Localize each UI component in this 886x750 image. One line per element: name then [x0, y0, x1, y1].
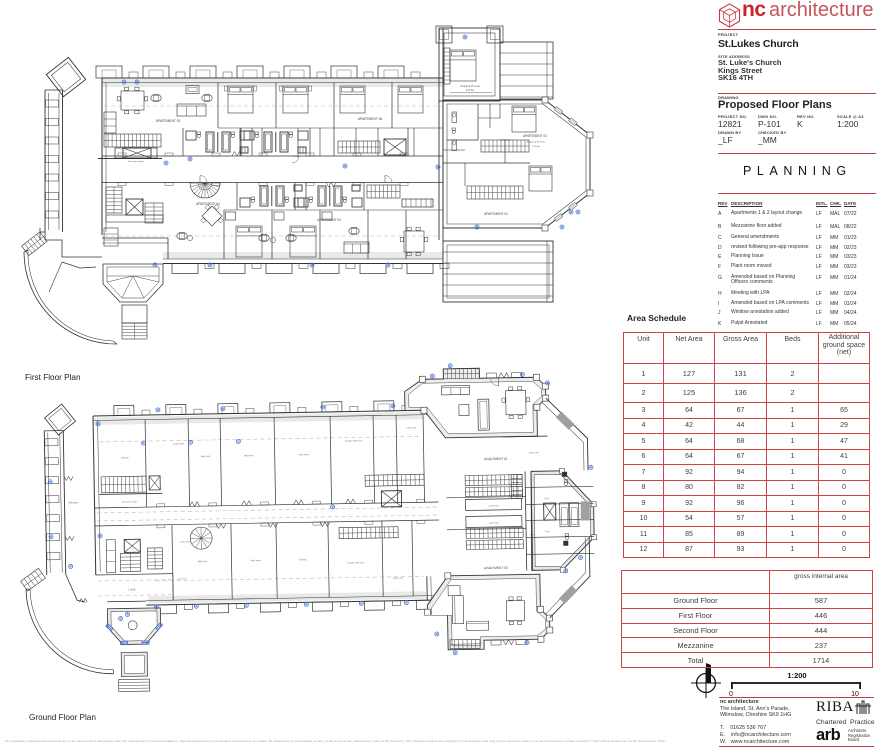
svg-text:Cycle store: Cycle store [406, 426, 417, 429]
svg-text:APARTMENT 02: APARTMENT 02 [484, 212, 508, 216]
svg-text:Storage / Bed room: Storage / Bed room [345, 439, 363, 442]
svg-text:APARTMENT 02: APARTMENT 02 [484, 566, 508, 570]
svg-text:APARTMENT 03: APARTMENT 03 [156, 119, 181, 123]
svg-text:Cinema: Cinema [121, 457, 129, 459]
svg-text:Plant room: Plant room [298, 453, 309, 456]
svg-text:1:56.9m: 1:56.9m [532, 146, 540, 148]
svg-text:APARTMENT 06: APARTMENT 06 [358, 117, 383, 121]
svg-text:Cycle store: Cycle store [529, 451, 540, 454]
svg-text:Cycle store: Cycle store [173, 442, 185, 445]
svg-text:1:57.8m: 1:57.8m [466, 90, 474, 92]
svg-text:APARTMENT 01: APARTMENT 01 [484, 457, 508, 461]
svg-text:Entrance: Entrance [69, 501, 79, 504]
svg-text:Cycle store: Cycle store [393, 577, 404, 580]
svg-text:Proposed FF Level: Proposed FF Level [527, 141, 546, 144]
svg-text:1:200: 1:200 [787, 671, 806, 680]
svg-text:First Floor Plan: First Floor Plan [25, 373, 81, 382]
svg-text:Plant room: Plant room [250, 559, 261, 562]
svg-text:Cinema: Cinema [299, 559, 307, 561]
svg-text:Store: Store [529, 503, 534, 506]
svg-text:Ground Floor Plan: Ground Floor Plan [29, 713, 96, 722]
svg-text:Cycle store: Cycle store [489, 504, 500, 507]
svg-text:Bed room: Bed room [201, 455, 211, 458]
svg-text:APARTMENT 01: APARTMENT 01 [523, 134, 547, 138]
svg-text:Cycle store: Cycle store [180, 540, 191, 543]
svg-text:Store: Store [530, 533, 535, 536]
svg-text:Bed room: Bed room [198, 560, 208, 563]
svg-text:Proposed FF Level: Proposed FF Level [460, 85, 480, 88]
svg-text:Cycle store: Cycle store [177, 577, 187, 580]
svg-text:Mezzanine bridge: Mezzanine bridge [122, 500, 137, 503]
svg-text:APARTMENT 04: APARTMENT 04 [196, 202, 220, 206]
svg-text:Mezzanine bridge: Mezzanine bridge [128, 161, 145, 163]
svg-text:Lobby: Lobby [128, 587, 136, 591]
svg-text:Storage / Bed room: Storage / Bed room [347, 561, 365, 564]
svg-text:Bed room: Bed room [244, 454, 254, 457]
svg-text:Cycle store: Cycle store [489, 521, 500, 524]
